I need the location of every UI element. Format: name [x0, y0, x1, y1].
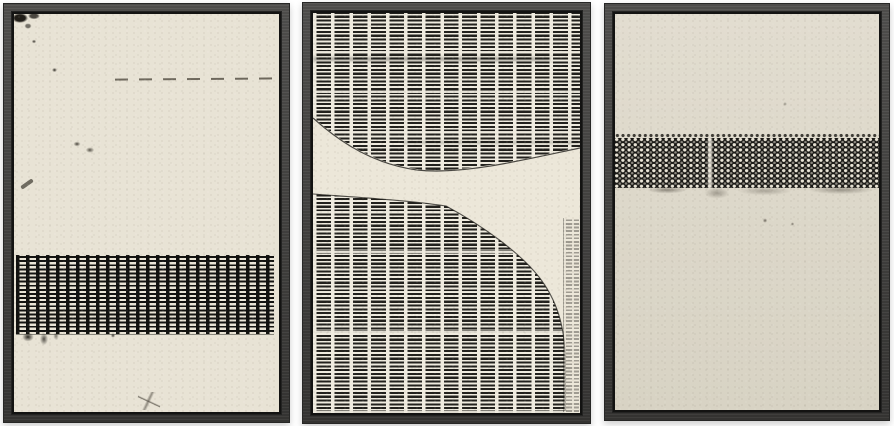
scratch-line: [115, 77, 277, 80]
dash-grid-band: [16, 255, 274, 334]
product-photo: [0, 0, 894, 426]
paint-speck: [791, 222, 794, 226]
canvas-texture: [14, 14, 279, 412]
paint-speck: [783, 102, 787, 106]
paint-speck: [763, 218, 767, 223]
ink-smudge: [615, 186, 879, 202]
paint-speck: [50, 66, 59, 74]
canvas-art-middle: [313, 13, 580, 413]
pencil-scribble: [138, 392, 160, 410]
picture-frame: [3, 3, 290, 423]
frame-inner-lip: [612, 11, 882, 413]
picture-frame: [604, 3, 890, 421]
frame-inner-lip: [11, 11, 282, 415]
paint-speck: [70, 138, 100, 156]
white-streak: [708, 138, 712, 188]
paint-speck: [20, 178, 34, 189]
framed-canvas-left: [3, 3, 290, 423]
framed-canvas-middle: [302, 2, 591, 424]
dotted-weave-band: [615, 138, 879, 188]
picture-frame: [302, 2, 591, 424]
faded-pattern-strip: [563, 218, 579, 412]
frame-inner-lip: [310, 10, 583, 416]
canvas-art-right: [615, 14, 879, 410]
cream-region: [313, 117, 580, 413]
canvas-art-left: [14, 14, 279, 412]
ink-blotch: [14, 14, 49, 34]
canvas-texture: [615, 14, 879, 410]
cream-s-curve: [313, 13, 580, 413]
framed-canvas-right: [604, 3, 890, 421]
paint-speck: [30, 38, 38, 45]
